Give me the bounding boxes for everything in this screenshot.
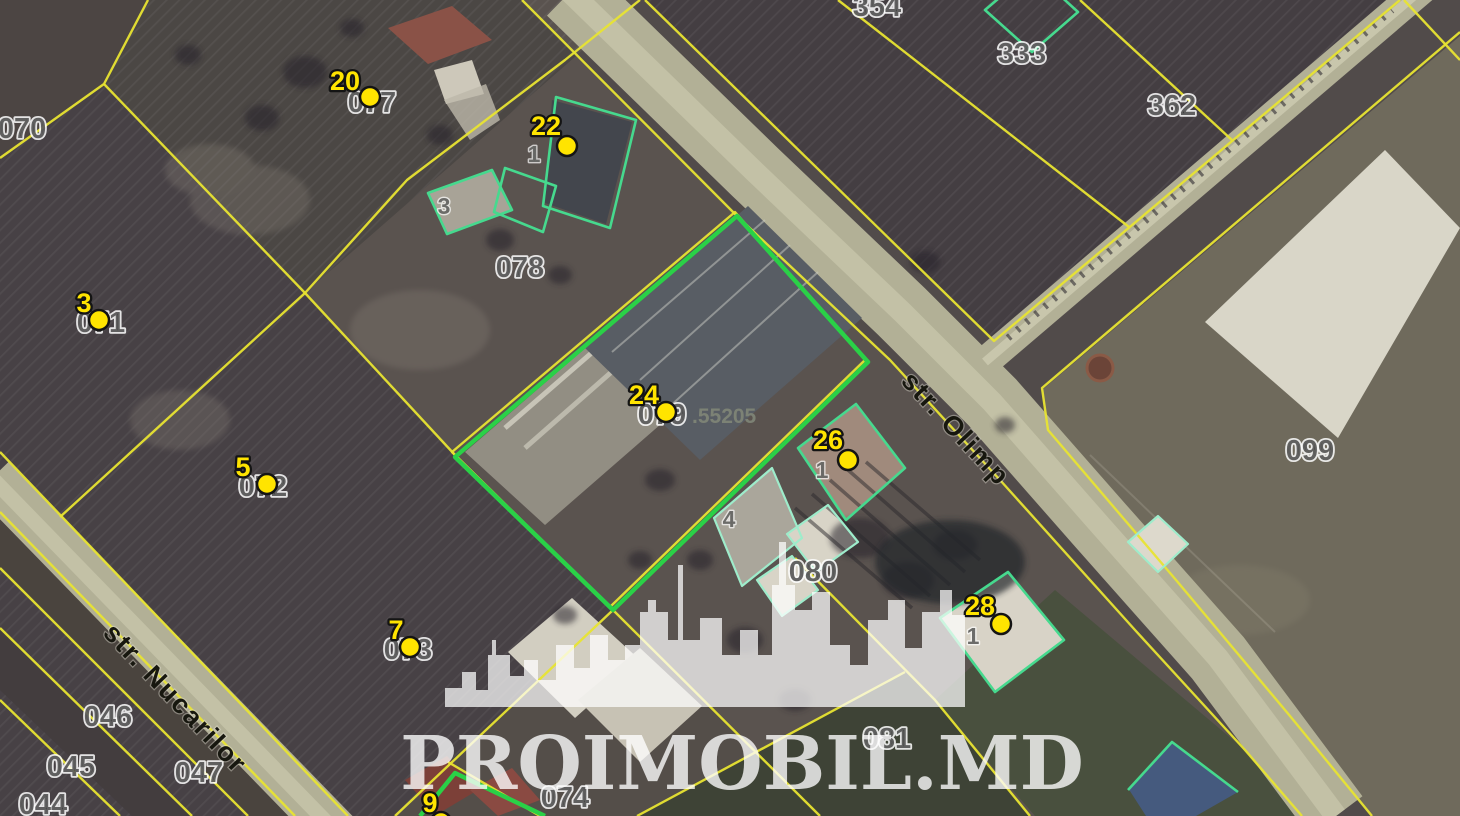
parcel-label-078: 078: [496, 252, 544, 284]
marker-5-number: 5: [235, 452, 250, 482]
marker-20-dot[interactable]: [360, 87, 380, 107]
marker-24-number: 24: [629, 380, 659, 410]
marker-3-number: 3: [76, 288, 91, 318]
parcel-label-046: 046: [84, 701, 132, 733]
cadastral-map[interactable]: 070 354 333 362 078 099 080 081 074 047 …: [0, 0, 1460, 816]
parcel-label-354: 354: [853, 0, 901, 23]
marker-26-number: 26: [813, 425, 843, 455]
marker-24-suffix: .55205: [692, 405, 757, 428]
parcel-label-362: 362: [1148, 90, 1196, 122]
parcel-label-080: 080: [789, 556, 837, 588]
marker-26-building: 1: [816, 457, 829, 483]
watermark-text: PROIMOBIL.MD: [400, 721, 1084, 807]
marker-3-dot[interactable]: [89, 310, 109, 330]
parcel-label-333: 333: [998, 38, 1046, 70]
marker-28-building: 1: [967, 623, 980, 649]
outbuilding-label-4: 4: [723, 506, 736, 532]
parcel-label-070: 070: [0, 113, 46, 145]
marker-5-dot[interactable]: [257, 474, 277, 494]
outbuilding-label-3: 3: [438, 193, 451, 219]
marker-20-number: 20: [330, 66, 360, 96]
parcel-label-099: 099: [1286, 435, 1334, 467]
parcel-label-045: 045: [47, 751, 95, 783]
rusty-structure: [1087, 355, 1113, 381]
marker-22-building: 1: [528, 141, 541, 167]
parcel-label-044: 044: [19, 789, 67, 816]
map-viewport[interactable]: 070 354 333 362 078 099 080 081 074 047 …: [0, 0, 1460, 816]
marker-28-number: 28: [965, 591, 995, 621]
marker-7-number: 7: [388, 615, 403, 645]
marker-22-number: 22: [531, 111, 561, 141]
